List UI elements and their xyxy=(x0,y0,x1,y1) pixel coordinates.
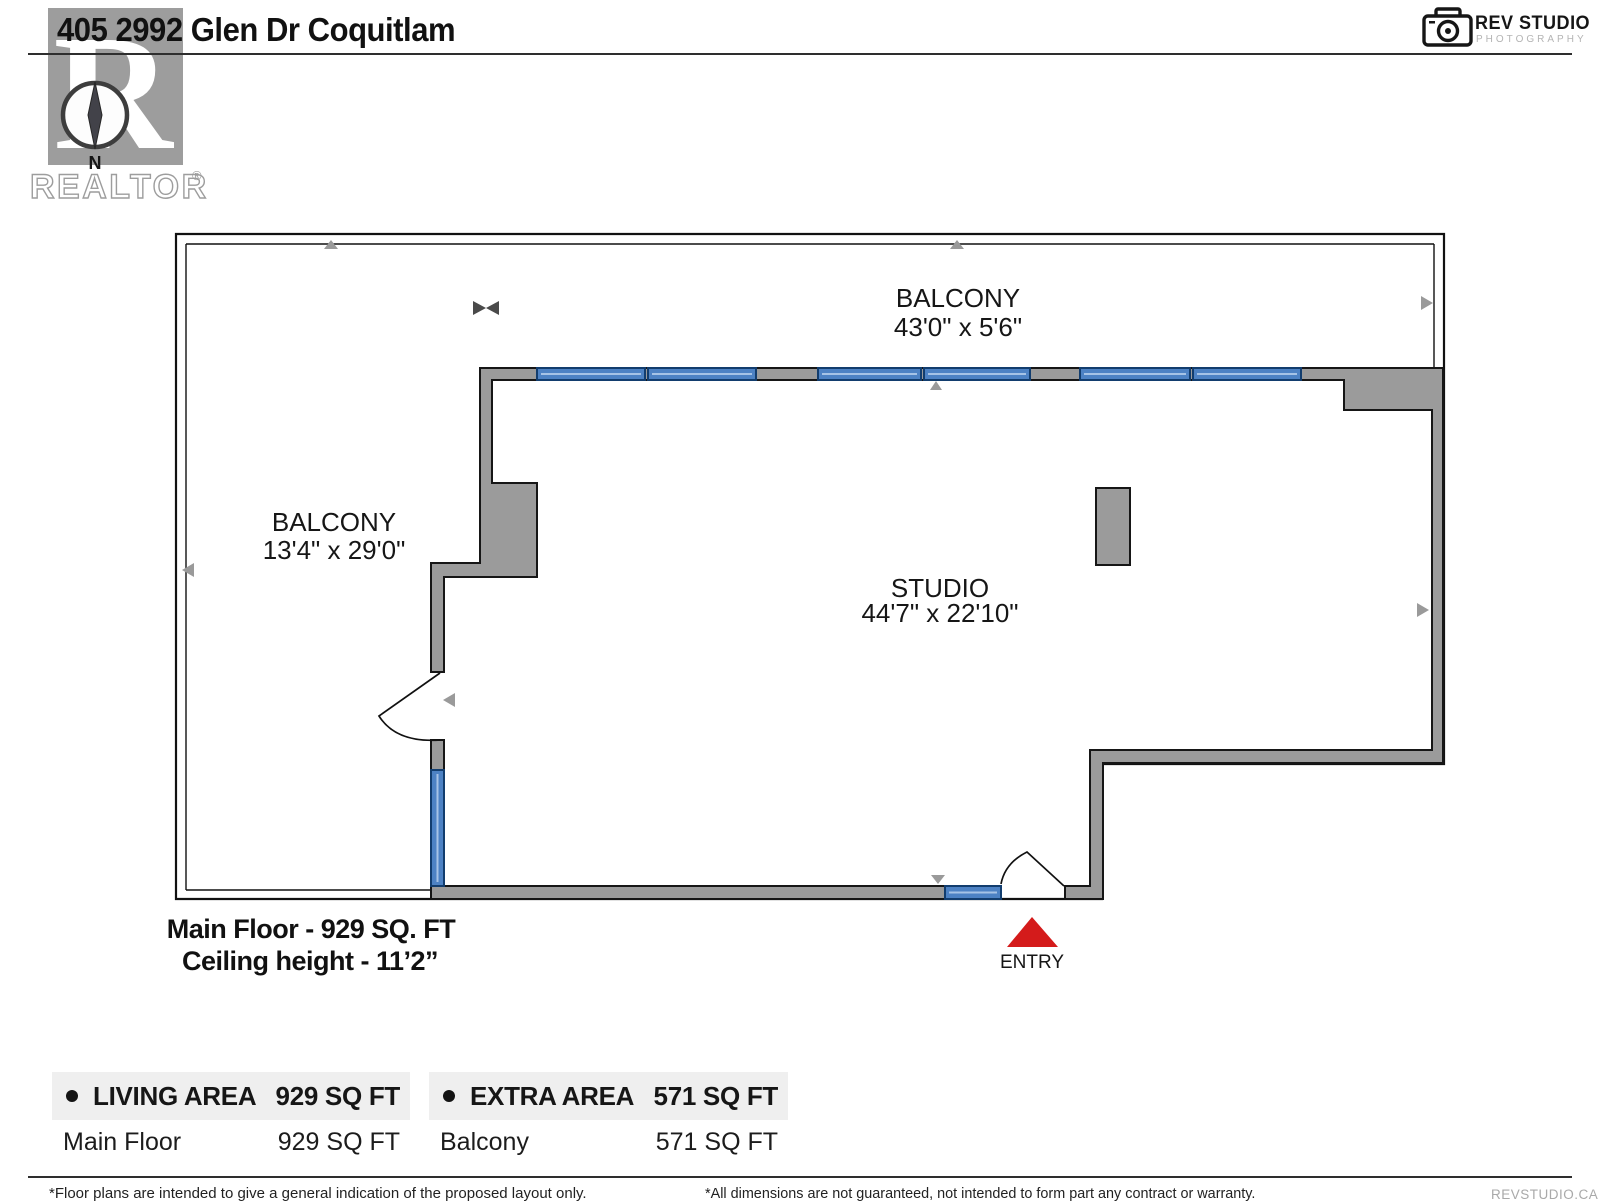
compass-icon xyxy=(63,82,127,149)
row-label: Balcony xyxy=(440,1128,529,1157)
window-band-top xyxy=(537,368,1301,380)
entry-door-swing xyxy=(1001,852,1064,886)
balcony-left-name: BALCONY xyxy=(272,507,396,537)
entry-label: ENTRY xyxy=(1000,952,1064,973)
extra-area-table: EXTRA AREA 571 SQ FT Balcony 571 SQ FT xyxy=(429,1072,788,1164)
floor-note: Main Floor - 929 SQ. FT xyxy=(167,914,457,944)
living-area-label: LIVING AREA xyxy=(93,1081,256,1112)
footer-disclaimer-left: *Floor plans are intended to give a gene… xyxy=(49,1185,587,1202)
ceiling-note: Ceiling height - 11’2” xyxy=(182,946,438,976)
column xyxy=(1096,488,1130,565)
row-value: 571 SQ FT xyxy=(656,1128,778,1157)
balcony-inner-rail xyxy=(186,244,1434,890)
extra-area-row: Balcony 571 SQ FT xyxy=(429,1120,788,1164)
bullet-icon xyxy=(66,1090,78,1102)
room-labels: BALCONY 43'0" x 5'6" BALCONY 13'4" x 29'… xyxy=(263,283,1065,973)
living-area-table: LIVING AREA 929 SQ FT Main Floor 929 SQ … xyxy=(52,1072,410,1164)
header-divider xyxy=(28,53,1572,55)
extra-area-header: EXTRA AREA 571 SQ FT xyxy=(429,1072,788,1120)
camera-icon xyxy=(1424,9,1471,45)
page-title: 405 2992 Glen Dr Coquitlam xyxy=(57,11,455,49)
left-wall-stub xyxy=(431,740,444,770)
balcony-door-swing xyxy=(379,673,440,740)
window-left xyxy=(431,770,444,886)
living-area-header: LIVING AREA 929 SQ FT xyxy=(52,1072,410,1120)
row-value: 929 SQ FT xyxy=(278,1128,400,1157)
balcony-top-name: BALCONY xyxy=(896,283,1020,313)
balcony-top-dims: 43'0" x 5'6" xyxy=(894,312,1022,342)
footer-disclaimer-right: *All dimensions are not guaranteed, not … xyxy=(705,1185,1255,1202)
entry-triangle xyxy=(1007,917,1058,947)
row-label: Main Floor xyxy=(63,1128,181,1157)
revstudio-logo-name: REV STUDIO xyxy=(1475,13,1590,35)
extra-area-label: EXTRA AREA xyxy=(470,1081,634,1112)
registered-mark: ® xyxy=(192,168,202,183)
realtor-wordmark: REALTOR xyxy=(30,168,209,206)
studio-right-wall xyxy=(1065,368,1443,899)
studio-dims: 44'7" x 22'10" xyxy=(861,598,1018,628)
balcony-left-dims: 13'4" x 29'0" xyxy=(263,535,406,565)
studio-left-wall xyxy=(431,368,537,672)
window-bottom xyxy=(945,886,1001,899)
footer-divider xyxy=(28,1176,1572,1178)
bullet-icon xyxy=(443,1090,455,1102)
revstudio-logo-sub: PHOTOGRAPHY xyxy=(1476,34,1587,45)
extra-area-total: 571 SQ FT xyxy=(654,1081,778,1112)
studio-bottom-wall xyxy=(431,886,945,899)
living-area-row: Main Floor 929 SQ FT xyxy=(52,1120,410,1164)
balcony-outer-boundary xyxy=(176,234,1444,899)
living-area-total: 929 SQ FT xyxy=(276,1081,400,1112)
floor-plan-canvas: R N REALTOR ® xyxy=(0,0,1600,1200)
